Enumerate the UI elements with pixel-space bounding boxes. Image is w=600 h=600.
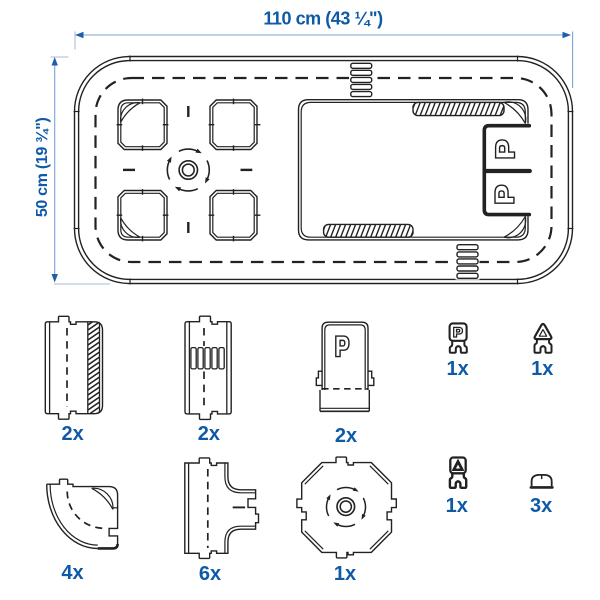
svg-text:1x: 1x xyxy=(446,358,468,380)
svg-text:50 cm (19 ¾"): 50 cm (19 ¾") xyxy=(34,117,51,217)
svg-text:6x: 6x xyxy=(199,563,221,585)
svg-text:2x: 2x xyxy=(335,425,357,447)
svg-text:2x: 2x xyxy=(198,423,220,445)
svg-text:4x: 4x xyxy=(61,562,83,584)
svg-text:3x: 3x xyxy=(530,495,552,517)
svg-text:1x: 1x xyxy=(446,495,468,517)
svg-text:1x: 1x xyxy=(531,358,553,380)
svg-text:1x: 1x xyxy=(334,563,356,585)
svg-text:110 cm (43 ¼"): 110 cm (43 ¼") xyxy=(263,9,383,29)
svg-text:2x: 2x xyxy=(61,423,83,445)
